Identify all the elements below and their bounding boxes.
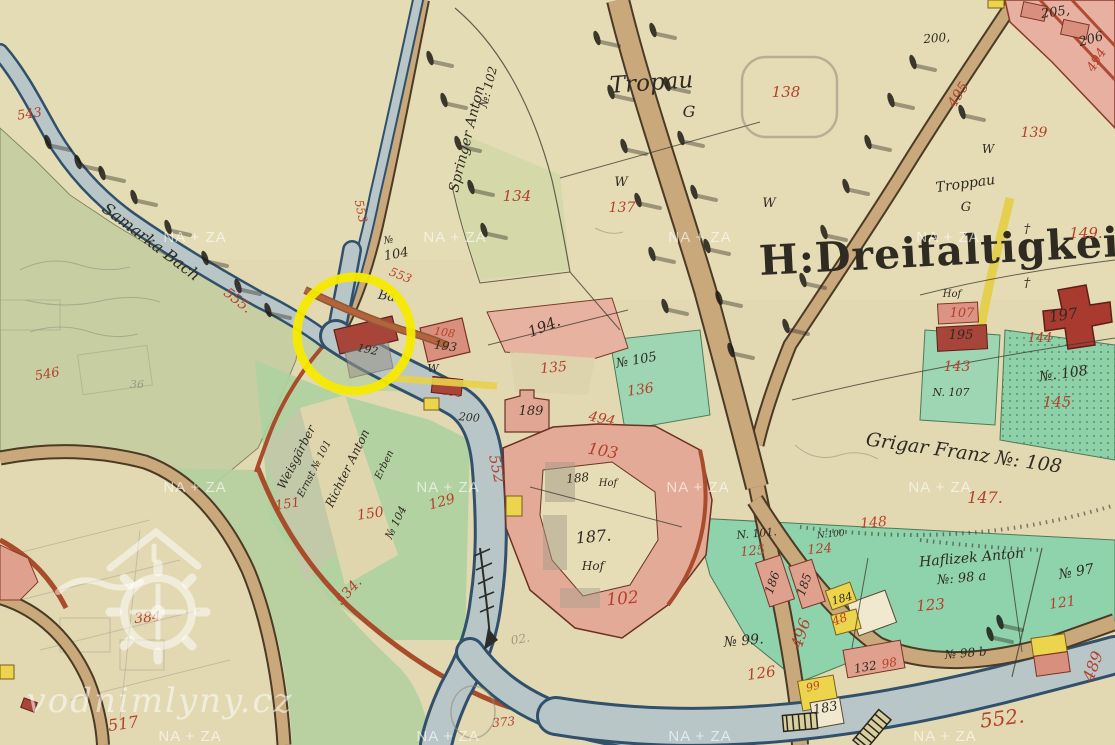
na-za-watermark: NA + ZA	[668, 728, 731, 745]
map-label: 149.	[1069, 224, 1102, 242]
na-za-watermark: NA + ZA	[913, 728, 976, 745]
map-label: Hof	[942, 289, 964, 300]
map-label: 373	[492, 714, 516, 730]
map-label: №	[382, 234, 394, 247]
map-label: 189	[519, 404, 544, 419]
map-label: 138	[772, 83, 801, 101]
map-label: 137	[609, 200, 636, 216]
na-za-watermark: NA + ZA	[416, 728, 479, 745]
map-label: 148	[860, 514, 888, 532]
map-label: †	[1024, 276, 1031, 291]
map-label: 144	[1028, 331, 1053, 346]
map-label: 200	[457, 410, 480, 425]
site-watermark-text: vodnimlyny.cz	[27, 681, 294, 721]
map-label: W	[614, 175, 629, 190]
map-label: W	[427, 362, 440, 375]
map-viewport[interactable]: 543555.Samarka Bach553553№104Springer An…	[0, 0, 1115, 745]
map-label: 125	[740, 543, 766, 560]
na-za-watermark: NA + ZA	[668, 229, 731, 246]
na-za-watermark: NA + ZA	[163, 479, 226, 496]
map-label: 135	[540, 359, 568, 377]
na-za-watermark: NA + ZA	[423, 229, 486, 246]
map-label: W	[982, 142, 996, 156]
map-label: 145	[1043, 393, 1072, 411]
map-label: Hof	[598, 478, 620, 489]
na-za-watermark: NA + ZA	[158, 728, 221, 745]
map-label: 187.	[575, 526, 612, 548]
map-label: 123	[916, 595, 946, 615]
na-za-watermark: NA + ZA	[416, 479, 479, 496]
na-za-watermark: NA + ZA	[916, 229, 979, 246]
na-za-watermark: NA + ZA	[908, 479, 971, 496]
map-label: 98	[881, 655, 899, 672]
map-label: W	[762, 196, 777, 211]
map-label: 147.	[967, 488, 1003, 507]
map-label: 200,	[922, 30, 951, 46]
map-label: G	[683, 102, 696, 121]
map-label: Hof	[581, 559, 607, 573]
na-za-watermark: NA + ZA	[163, 229, 226, 246]
map-label: †	[1024, 222, 1031, 237]
map-label: 143	[944, 359, 971, 375]
map-label: 139	[1021, 125, 1048, 141]
map-label: 102	[606, 588, 640, 611]
map-label: 195	[949, 328, 974, 343]
map-label: N. 107	[932, 386, 970, 399]
map-label: 36	[130, 378, 144, 391]
historical-map-canvas[interactable]: 543555.Samarka Bach553553№104Springer An…	[0, 0, 1115, 745]
map-label: 124	[807, 541, 833, 558]
map-label: 134	[503, 187, 532, 205]
map-label: G	[961, 200, 971, 215]
map-label: 107	[950, 306, 976, 321]
na-za-watermark: NA + ZA	[666, 479, 729, 496]
map-label: 188	[566, 470, 590, 486]
